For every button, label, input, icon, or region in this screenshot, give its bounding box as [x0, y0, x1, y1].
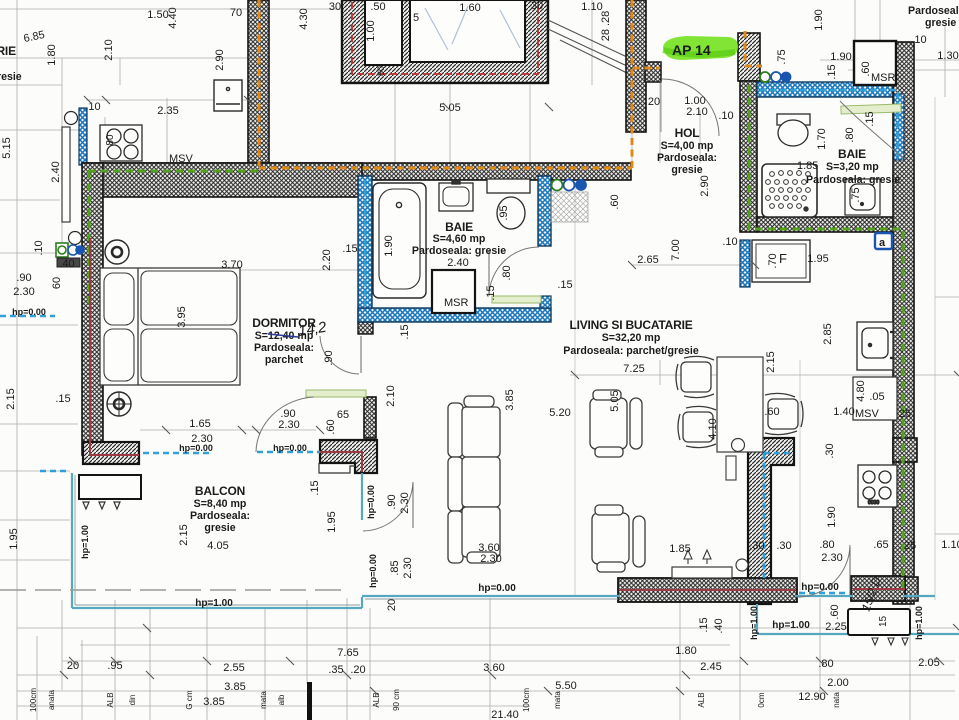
svg-text:30: 30	[531, 0, 543, 12]
svg-text:7.25: 7.25	[623, 363, 644, 375]
svg-text:Pardoseala:: Pardoseala:	[254, 342, 314, 354]
svg-text:F: F	[779, 251, 787, 266]
svg-text:4.80: 4.80	[855, 380, 867, 401]
svg-text:90 cm: 90 cm	[392, 689, 401, 711]
svg-text:1.85: 1.85	[797, 160, 818, 172]
svg-text:25: 25	[904, 540, 916, 552]
svg-text:ALB: ALB	[372, 692, 381, 707]
svg-text:2.10: 2.10	[103, 39, 115, 60]
svg-text:3.60: 3.60	[483, 662, 504, 674]
svg-text:.90: .90	[16, 272, 31, 284]
svg-text:20: 20	[67, 660, 79, 672]
svg-text:gresie: gresie	[671, 164, 702, 176]
svg-text:1.70: 1.70	[816, 128, 828, 149]
svg-text:hp=0.00: hp=0.00	[273, 443, 307, 453]
svg-text:hp=0.00: hp=0.00	[179, 443, 213, 453]
svg-text:hp=0.00: hp=0.00	[366, 485, 376, 519]
svg-text:ARIE: ARIE	[0, 44, 16, 58]
svg-text:LIVING SI BUCATARIE: LIVING SI BUCATARIE	[569, 318, 692, 332]
svg-text:2.40: 2.40	[447, 257, 468, 269]
svg-text:3.70: 3.70	[221, 259, 242, 271]
svg-text:2.15: 2.15	[5, 388, 17, 409]
svg-text:1.30: 1.30	[937, 50, 958, 62]
svg-text:1.90: 1.90	[813, 9, 825, 30]
svg-text:30: 30	[329, 1, 341, 13]
svg-text:1.10: 1.10	[941, 539, 959, 551]
svg-text:2.90: 2.90	[699, 175, 711, 196]
svg-text:hp=0.00: hp=0.00	[12, 307, 46, 317]
svg-text:MSV: MSV	[169, 153, 194, 165]
svg-text:MSV: MSV	[855, 408, 880, 420]
svg-text:mata: mata	[259, 691, 268, 709]
svg-text:BAIE: BAIE	[838, 147, 866, 161]
svg-text:hp=0.00: hp=0.00	[801, 582, 839, 593]
svg-text:12.90: 12.90	[798, 691, 826, 703]
svg-text:hp=0.00: hp=0.00	[368, 554, 378, 588]
svg-text:.15: .15	[557, 279, 572, 291]
svg-text:.40: .40	[713, 618, 725, 633]
svg-text:1.65: 1.65	[189, 418, 210, 430]
svg-text:3.85: 3.85	[504, 389, 516, 410]
svg-text:hp=1.00: hp=1.00	[80, 525, 90, 559]
svg-text:.30: .30	[776, 540, 791, 552]
svg-text:5.05: 5.05	[439, 102, 460, 114]
svg-text:5.20: 5.20	[549, 407, 570, 419]
svg-text:.60: .60	[764, 406, 779, 418]
svg-text:2.30: 2.30	[13, 286, 34, 298]
svg-text:BALCON: BALCON	[195, 484, 245, 498]
svg-text:BAIE: BAIE	[445, 220, 473, 234]
svg-text:.15: .15	[399, 324, 411, 339]
svg-text:60: 60	[51, 277, 63, 289]
svg-text:1.95: 1.95	[8, 528, 20, 549]
svg-text:2.30: 2.30	[399, 492, 411, 513]
svg-text:28 .28: 28 .28	[600, 11, 612, 42]
svg-text:.80: .80	[819, 539, 834, 551]
svg-text:.15: .15	[698, 617, 710, 632]
svg-text:1.60: 1.60	[459, 2, 480, 14]
svg-text:2.15: 2.15	[178, 524, 190, 545]
svg-text:.90: .90	[386, 494, 398, 509]
svg-text:25: 25	[899, 408, 911, 420]
svg-text:3.95: 3.95	[176, 306, 188, 327]
svg-text:MSR: MSR	[871, 72, 896, 84]
svg-text:2.05: 2.05	[918, 657, 939, 669]
svg-text:.15: .15	[826, 64, 838, 79]
svg-text:2.30: 2.30	[480, 553, 501, 565]
svg-text:ALB: ALB	[697, 692, 706, 707]
svg-text:gresie: gresie	[204, 522, 235, 534]
svg-text:.10: .10	[85, 101, 100, 113]
svg-text:.15: .15	[309, 480, 321, 495]
svg-text:4.05: 4.05	[207, 540, 228, 552]
svg-text:.15: .15	[864, 111, 876, 126]
svg-text:5.50: 5.50	[555, 680, 576, 692]
svg-text:HOL: HOL	[675, 126, 700, 140]
svg-text:70: 70	[230, 7, 242, 19]
svg-text:7.00: 7.00	[670, 239, 682, 260]
svg-text:.70: .70	[767, 253, 779, 268]
svg-text:5.05: 5.05	[609, 390, 621, 411]
svg-text:1.95: 1.95	[807, 253, 828, 265]
svg-text:.95: .95	[107, 660, 122, 672]
svg-text:0cm: 0cm	[757, 692, 766, 707]
svg-text:.10: .10	[33, 240, 45, 255]
svg-text:nata: nata	[832, 692, 841, 708]
svg-text:3.85: 3.85	[203, 696, 224, 708]
svg-text:20: 20	[386, 599, 398, 611]
svg-text:.40: .40	[59, 258, 74, 270]
svg-text:AP 14: AP 14	[672, 42, 711, 58]
svg-text:1.90: 1.90	[826, 506, 838, 527]
svg-text:2.40: 2.40	[50, 161, 62, 182]
svg-text:2.45: 2.45	[700, 661, 721, 673]
svg-text:2.10: 2.10	[385, 385, 397, 406]
svg-text:S=3,20 mp: S=3,20 mp	[826, 161, 879, 173]
svg-text:a: a	[879, 237, 886, 249]
svg-text:4.30: 4.30	[298, 8, 310, 29]
svg-text:Pardoseala:: Pardoseala:	[657, 152, 717, 164]
svg-text:1.80: 1.80	[675, 645, 696, 657]
svg-text:Pardoseala: gresie: Pardoseala: gresie	[412, 245, 506, 257]
svg-text:.60: .60	[325, 419, 337, 434]
svg-text:G cm: G cm	[185, 690, 194, 709]
svg-text:S=4,00 mp: S=4,00 mp	[661, 140, 714, 152]
svg-text:100cm: 100cm	[29, 688, 38, 712]
svg-text:t/gresie: t/gresie	[0, 71, 22, 83]
svg-text:S=8,40 mp: S=8,40 mp	[194, 498, 247, 510]
svg-text:hp=1.00: hp=1.00	[195, 598, 233, 609]
svg-text:1.95: 1.95	[326, 511, 338, 532]
svg-text:.65: .65	[873, 539, 888, 551]
svg-text:2.20: 2.20	[321, 249, 333, 270]
svg-text:2.10: 2.10	[686, 106, 707, 118]
svg-text:Pardoseala: parchet/gresie: Pardoseala: parchet/gresie	[563, 345, 699, 357]
svg-text:5.15: 5.15	[1, 137, 13, 158]
svg-text:80: 80	[105, 134, 116, 146]
svg-text:parchet: parchet	[265, 354, 304, 366]
svg-text:hp=1.00: hp=1.00	[749, 606, 759, 640]
svg-text:.15: .15	[342, 243, 357, 255]
svg-text:1.85: 1.85	[669, 543, 690, 555]
svg-text:2.00: 2.00	[827, 677, 848, 689]
svg-text:hp=1.00: hp=1.00	[772, 620, 810, 631]
svg-text:5: 5	[413, 12, 419, 24]
svg-text:2.35: 2.35	[157, 105, 178, 117]
svg-text:.35: .35	[328, 664, 343, 676]
svg-text:MSR: MSR	[444, 297, 469, 309]
svg-text:.75: .75	[776, 49, 788, 64]
svg-text:.80: .80	[844, 127, 856, 142]
svg-text:100cm: 100cm	[522, 688, 531, 712]
svg-text:.10: .10	[718, 110, 733, 122]
svg-text:.90: .90	[323, 350, 335, 365]
svg-text:ALB: ALB	[106, 692, 115, 707]
svg-text:15: 15	[878, 615, 889, 627]
svg-text:.15: .15	[55, 393, 70, 405]
svg-text:2.90: 2.90	[214, 49, 226, 70]
svg-text:Pardoseala:: Pardoseala:	[190, 510, 250, 522]
svg-text:2.30: 2.30	[821, 552, 842, 564]
svg-text:.30: .30	[749, 540, 764, 552]
svg-text:Pardoseala: Pardoseala	[908, 5, 959, 17]
svg-text:0000: 0000	[868, 500, 879, 506]
svg-text:2.85: 2.85	[822, 323, 834, 344]
svg-text:.50: .50	[370, 1, 385, 13]
svg-text:din: din	[128, 695, 137, 706]
svg-text:.60: .60	[860, 61, 872, 76]
svg-text:1.90: 1.90	[830, 51, 851, 63]
svg-text:S=32,20 mp: S=32,20 mp	[602, 332, 661, 344]
svg-text:2.30: 2.30	[278, 419, 299, 431]
svg-text:1.50: 1.50	[147, 9, 168, 21]
svg-text:.85: .85	[389, 560, 401, 575]
svg-text:.80: .80	[501, 265, 513, 280]
svg-text:hp=1.00: hp=1.00	[914, 606, 924, 640]
svg-text:65: 65	[337, 409, 349, 421]
svg-text:.75: .75	[850, 187, 862, 202]
svg-text:.10: .10	[722, 236, 737, 248]
svg-text:S=4,60 mp: S=4,60 mp	[433, 233, 486, 245]
svg-text:mata: mata	[553, 691, 562, 709]
svg-text:21.40: 21.40	[491, 709, 519, 720]
svg-text:.20: .20	[350, 664, 365, 676]
svg-text:anata: anata	[47, 689, 56, 710]
svg-text:alb: alb	[277, 694, 286, 705]
svg-text:2.15: 2.15	[765, 351, 777, 372]
svg-text:4.10: 4.10	[707, 418, 719, 439]
svg-text:1.40: 1.40	[833, 406, 854, 418]
svg-text:3.85: 3.85	[224, 681, 245, 693]
svg-text:.60: .60	[609, 194, 621, 209]
svg-text:gresie: gresie	[925, 17, 956, 29]
svg-text:.95: .95	[498, 205, 510, 220]
svg-text:2.30: 2.30	[402, 557, 414, 578]
svg-text:1.90: 1.90	[383, 235, 395, 256]
svg-text:20: 20	[648, 96, 660, 108]
svg-text:.60: .60	[829, 604, 841, 619]
svg-text:2.65: 2.65	[637, 254, 658, 266]
svg-text:4.40: 4.40	[167, 7, 179, 28]
svg-text:.30: .30	[824, 443, 836, 458]
svg-text:80: 80	[376, 66, 386, 76]
svg-text:Pardoseala: gresie: Pardoseala: gresie	[806, 174, 900, 186]
svg-text:1.00: 1.00	[365, 20, 377, 41]
svg-text:2.25: 2.25	[825, 621, 846, 633]
svg-text:.10: .10	[911, 34, 926, 46]
svg-text:2.55: 2.55	[223, 662, 244, 674]
svg-text:.80: .80	[818, 658, 833, 670]
svg-text:1.80: 1.80	[46, 44, 58, 65]
svg-text:.05: .05	[869, 391, 884, 403]
svg-text:hp=0.00: hp=0.00	[478, 583, 516, 594]
svg-text:7.65: 7.65	[337, 647, 358, 659]
svg-text:.15: .15	[485, 285, 497, 300]
